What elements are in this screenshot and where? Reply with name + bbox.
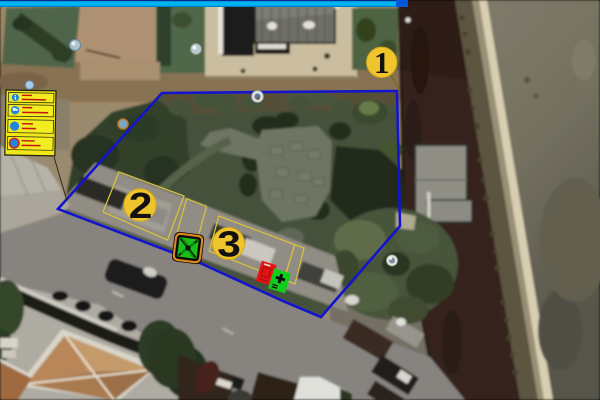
svg-text:2: 2 (129, 186, 153, 226)
svg-text:1: 1 (374, 45, 390, 80)
svg-text:3: 3 (217, 224, 241, 264)
